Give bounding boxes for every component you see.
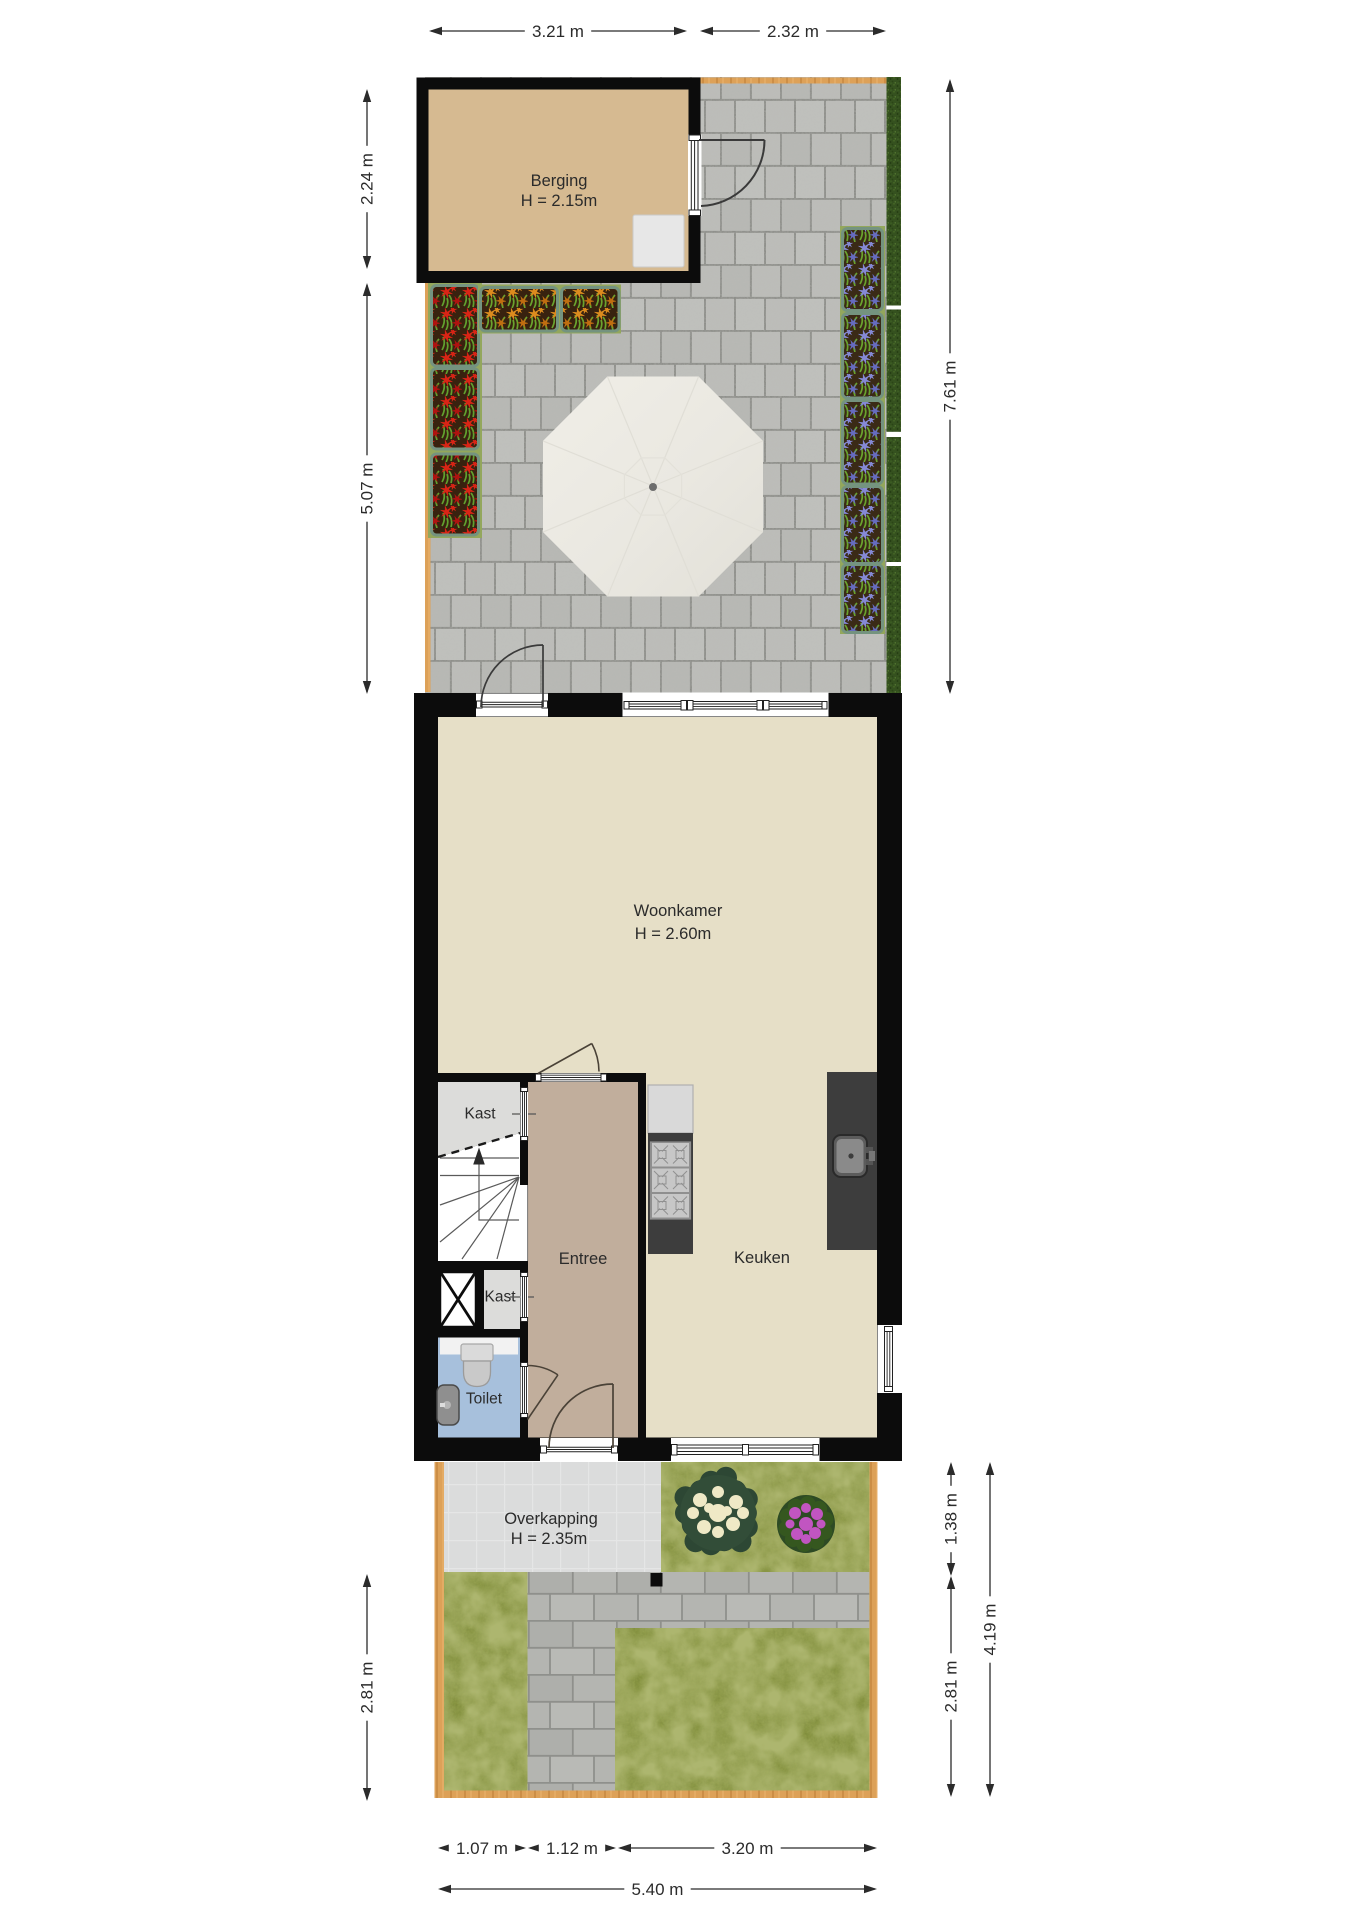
svg-text:1.12 m: 1.12 m xyxy=(546,1839,598,1858)
svg-text:2.81 m: 2.81 m xyxy=(358,1662,377,1714)
svg-text:3.20 m: 3.20 m xyxy=(722,1839,774,1858)
svg-text:Toilet: Toilet xyxy=(466,1391,503,1408)
svg-text:Overkapping: Overkapping xyxy=(504,1510,598,1528)
svg-text:Keuken: Keuken xyxy=(734,1249,790,1267)
svg-text:H = 2.15m: H = 2.15m xyxy=(521,192,598,210)
svg-text:7.61 m: 7.61 m xyxy=(941,361,960,413)
svg-text:Kast: Kast xyxy=(464,1106,496,1123)
svg-text:Entree: Entree xyxy=(559,1250,608,1268)
svg-text:Berging: Berging xyxy=(531,172,588,190)
svg-text:2.24 m: 2.24 m xyxy=(358,153,377,205)
svg-text:5.07 m: 5.07 m xyxy=(358,463,377,515)
svg-text:1.07 m: 1.07 m xyxy=(456,1839,508,1858)
svg-text:H = 2.60m: H = 2.60m xyxy=(635,925,712,943)
svg-text:2.81 m: 2.81 m xyxy=(942,1661,961,1713)
svg-text:1.38 m: 1.38 m xyxy=(942,1493,961,1545)
svg-text:5.40 m: 5.40 m xyxy=(632,1880,684,1899)
svg-text:2.32 m: 2.32 m xyxy=(767,22,819,41)
svg-text:4.19 m: 4.19 m xyxy=(981,1604,1000,1656)
svg-text:H = 2.35m: H = 2.35m xyxy=(511,1530,588,1548)
svg-text:Woonkamer: Woonkamer xyxy=(634,902,723,920)
svg-text:3.21 m: 3.21 m xyxy=(532,22,584,41)
